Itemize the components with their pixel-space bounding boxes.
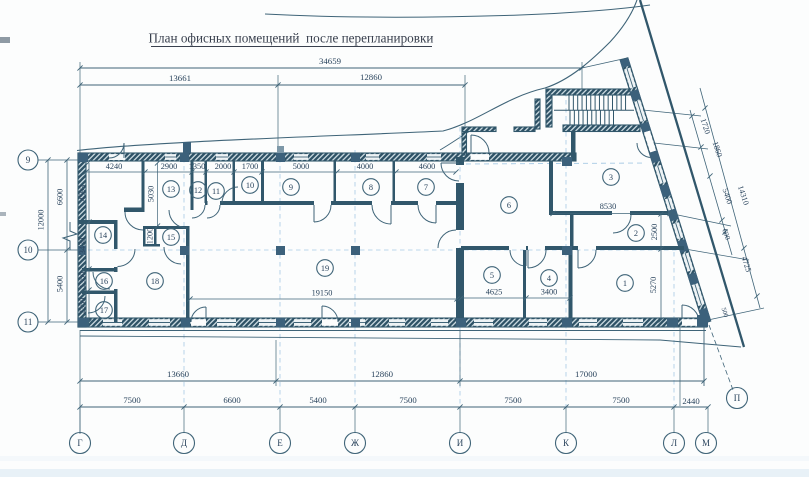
svg-text:34659: 34659: [319, 56, 342, 66]
svg-text:5: 5: [490, 271, 494, 280]
svg-text:1: 1: [623, 279, 627, 288]
svg-text:2500: 2500: [650, 224, 659, 241]
svg-text:14: 14: [99, 231, 108, 240]
svg-text:2350: 2350: [78, 298, 87, 315]
svg-text:К: К: [563, 438, 570, 448]
svg-text:11: 11: [24, 317, 33, 327]
svg-text:7500: 7500: [612, 395, 630, 405]
svg-text:3: 3: [609, 173, 613, 182]
svg-text:План офисных помещений после: План офисных помещений после перепланиро…: [149, 31, 434, 46]
svg-text:1700: 1700: [242, 162, 259, 171]
svg-text:10: 10: [24, 245, 34, 255]
svg-text:7: 7: [424, 183, 428, 192]
svg-text:2000: 2000: [215, 162, 232, 171]
svg-text:И: И: [457, 438, 464, 448]
svg-text:10: 10: [246, 181, 254, 190]
svg-text:7500: 7500: [123, 395, 141, 405]
svg-text:4000: 4000: [357, 162, 374, 171]
svg-text:11: 11: [212, 187, 220, 196]
svg-text:6600: 6600: [56, 189, 65, 206]
svg-text:8530: 8530: [600, 202, 617, 211]
svg-text:12860: 12860: [360, 72, 383, 82]
svg-text:13661: 13661: [169, 73, 191, 83]
svg-text:5030: 5030: [147, 186, 156, 203]
svg-text:3430: 3430: [78, 238, 87, 255]
svg-text:18: 18: [151, 277, 159, 286]
svg-text:15: 15: [167, 233, 175, 242]
svg-text:6: 6: [507, 201, 511, 210]
svg-text:Г: Г: [77, 438, 82, 448]
svg-text:5400: 5400: [309, 395, 327, 405]
svg-text:1350: 1350: [78, 272, 87, 289]
svg-text:2: 2: [634, 229, 638, 238]
svg-text:1350: 1350: [189, 162, 206, 171]
svg-text:12: 12: [194, 186, 202, 195]
svg-text:5000: 5000: [293, 162, 310, 171]
svg-text:Д: Д: [181, 438, 187, 448]
svg-text:М: М: [702, 438, 710, 448]
svg-text:2900: 2900: [161, 162, 178, 171]
svg-text:П: П: [734, 393, 741, 403]
svg-text:4625: 4625: [486, 288, 503, 297]
svg-text:1200: 1200: [146, 228, 155, 245]
svg-text:4593: 4593: [78, 185, 87, 202]
svg-text:13660: 13660: [167, 369, 190, 379]
svg-text:13: 13: [167, 185, 175, 194]
svg-text:4240: 4240: [106, 162, 123, 171]
svg-text:6600: 6600: [223, 395, 241, 405]
svg-text:Л: Л: [671, 438, 677, 448]
svg-text:12000: 12000: [37, 210, 46, 231]
svg-text:Ж: Ж: [351, 438, 360, 448]
svg-text:9: 9: [289, 183, 293, 192]
svg-text:4600: 4600: [419, 162, 436, 171]
svg-text:7500: 7500: [504, 395, 522, 405]
svg-text:3400: 3400: [541, 288, 558, 297]
svg-text:Е: Е: [277, 438, 283, 448]
svg-text:12860: 12860: [371, 369, 394, 379]
svg-text:5400: 5400: [56, 276, 65, 293]
svg-text:9: 9: [26, 155, 31, 165]
svg-text:19150: 19150: [312, 289, 333, 298]
svg-text:2440: 2440: [682, 396, 700, 406]
svg-text:5270: 5270: [649, 277, 658, 294]
svg-text:17000: 17000: [575, 369, 598, 379]
svg-text:7500: 7500: [399, 395, 417, 405]
svg-text:16: 16: [100, 277, 108, 286]
svg-text:8: 8: [369, 183, 373, 192]
svg-text:19: 19: [321, 264, 329, 273]
svg-text:17: 17: [100, 306, 108, 315]
